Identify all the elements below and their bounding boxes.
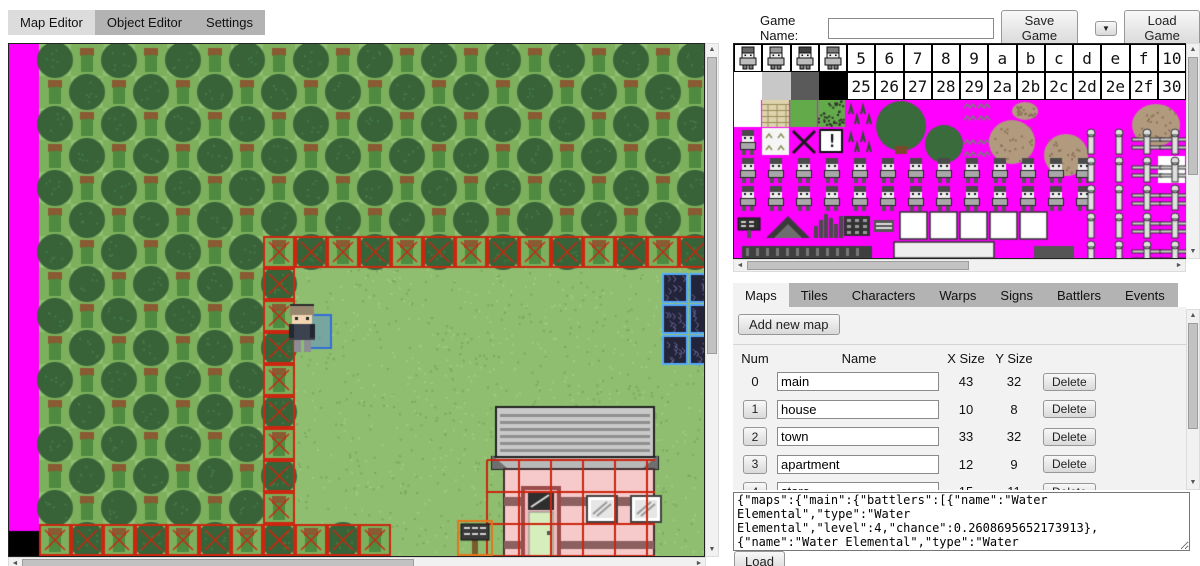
chevron-down-icon: ▼ xyxy=(1102,24,1110,33)
delete-map-button[interactable]: Delete xyxy=(1043,400,1096,418)
maps-table-header: Num Name X Size Y Size xyxy=(733,351,1037,366)
editor-tab-strip: Map EditorObject EditorSettings xyxy=(8,10,265,35)
map-num-label: 0 xyxy=(751,374,758,389)
swatch-cell-1[interactable] xyxy=(762,72,790,100)
map-num-button[interactable]: 4 xyxy=(743,482,767,490)
tile-cell-25[interactable]: 25 xyxy=(847,72,875,100)
person-sprite-icon xyxy=(737,46,759,70)
map-name-input[interactable] xyxy=(777,482,939,490)
tile-cell-29[interactable]: 29 xyxy=(960,72,988,100)
scroll-right-icon[interactable]: ► xyxy=(693,558,705,566)
tile-cell-28[interactable]: 28 xyxy=(932,72,960,100)
scroll-right-icon[interactable]: ► xyxy=(1173,260,1185,271)
tile-cell-d[interactable]: d xyxy=(1073,44,1101,72)
map-row: 23332Delete xyxy=(733,423,1186,451)
maps-vscroll-thumb[interactable] xyxy=(1188,323,1198,429)
map-name-input[interactable] xyxy=(777,427,939,446)
map-hscroll-thumb[interactable] xyxy=(22,559,414,566)
load-button[interactable]: Load xyxy=(734,551,785,566)
game-name-input[interactable] xyxy=(828,18,994,39)
tile-cell-10[interactable]: 10 xyxy=(1158,44,1186,72)
tile-cell-30[interactable]: 30 xyxy=(1158,72,1186,100)
map-row: 1108Delete xyxy=(733,396,1186,424)
panel-tab-events[interactable]: Events xyxy=(1113,283,1177,308)
tile-cell-6[interactable]: 6 xyxy=(875,44,903,72)
tile-cell-2d[interactable]: 2d xyxy=(1073,72,1101,100)
tileset-hscroll-thumb[interactable] xyxy=(747,261,969,270)
map-ysize: 11 xyxy=(991,484,1037,490)
scroll-left-icon[interactable]: ◄ xyxy=(9,558,21,566)
tileset-horizontal-scrollbar[interactable]: ◄ ► xyxy=(733,259,1186,272)
json-output-textarea[interactable]: {"maps":{"main":{"battlers":[{"name":"Wa… xyxy=(733,492,1190,551)
swatch-cell-3[interactable] xyxy=(819,72,847,100)
tile-cell-2e[interactable]: 2e xyxy=(1101,72,1129,100)
tile-palette-row-1: 56789abcdef10 xyxy=(734,44,1186,72)
map-vscroll-thumb[interactable] xyxy=(707,57,717,354)
panel-tab-strip: MapsTilesCharactersWarpsSignsBattlersEve… xyxy=(733,283,1178,308)
tile-cell-26[interactable]: 26 xyxy=(875,72,903,100)
person-sprite-icon xyxy=(794,46,816,70)
person-sprite-2[interactable] xyxy=(762,44,790,72)
tile-cell-2c[interactable]: 2c xyxy=(1045,72,1073,100)
map-row: 41511Delete xyxy=(733,478,1186,490)
map-xsize: 10 xyxy=(941,402,991,417)
panel-tab-characters[interactable]: Characters xyxy=(840,283,928,308)
delete-map-button[interactable]: Delete xyxy=(1043,373,1096,391)
tile-cell-b[interactable]: b xyxy=(1017,44,1045,72)
swatch-cell-0[interactable] xyxy=(734,72,762,100)
panel-tab-battlers[interactable]: Battlers xyxy=(1045,283,1113,308)
panel-tab-maps[interactable]: Maps xyxy=(733,283,789,308)
map-vertical-scrollbar[interactable]: ▲ ▼ xyxy=(705,43,719,557)
person-sprite-3[interactable] xyxy=(791,44,819,72)
tile-cell-5[interactable]: 5 xyxy=(847,44,875,72)
tileset-image[interactable] xyxy=(734,100,1186,258)
tile-cell-f[interactable]: f xyxy=(1130,44,1158,72)
map-ysize: 8 xyxy=(991,402,1037,417)
tile-cell-2f[interactable]: 2f xyxy=(1130,72,1158,100)
panel-tab-tiles[interactable]: Tiles xyxy=(789,283,840,308)
map-xsize: 33 xyxy=(941,429,991,444)
tile-cell-a[interactable]: a xyxy=(988,44,1016,72)
tileset-panel: 56789abcdef10 25262728292a2b2c2d2e2f30 xyxy=(733,43,1187,259)
tile-cell-c[interactable]: c xyxy=(1045,44,1073,72)
header-y-size: Y Size xyxy=(991,351,1037,366)
editor-tab-map-editor[interactable]: Map Editor xyxy=(8,10,95,35)
swatch-cell-2[interactable] xyxy=(791,72,819,100)
map-num-button[interactable]: 3 xyxy=(743,455,767,474)
map-xsize: 12 xyxy=(941,457,991,472)
delete-map-button[interactable]: Delete xyxy=(1043,428,1096,446)
editor-tab-object-editor[interactable]: Object Editor xyxy=(95,10,194,35)
tile-cell-e[interactable]: e xyxy=(1101,44,1129,72)
person-sprite-icon xyxy=(822,46,844,70)
map-ysize: 32 xyxy=(991,429,1037,444)
map-xsize: 43 xyxy=(941,374,991,389)
map-row: 3129Delete xyxy=(733,451,1186,479)
load-game-dropdown[interactable]: ▼ xyxy=(1095,21,1118,36)
game-name-label: Game Name: xyxy=(760,13,821,43)
panel-tab-warps[interactable]: Warps xyxy=(927,283,988,308)
header-num: Num xyxy=(733,351,777,366)
scroll-up-icon[interactable]: ▲ xyxy=(706,44,718,56)
scroll-down-icon[interactable]: ▼ xyxy=(706,544,718,556)
tile-cell-27[interactable]: 27 xyxy=(904,72,932,100)
divider xyxy=(733,344,1186,345)
map-editor-viewport xyxy=(8,43,705,557)
map-xsize: 15 xyxy=(941,484,991,490)
tile-cell-2b[interactable]: 2b xyxy=(1017,72,1045,100)
header-x-size: X Size xyxy=(941,351,991,366)
scroll-up-icon[interactable]: ▲ xyxy=(1187,310,1199,322)
maps-table-body: 04332Delete1108Delete23332Delete3129Dele… xyxy=(733,368,1186,490)
scroll-left-icon[interactable]: ◄ xyxy=(734,260,746,271)
person-sprite-icon xyxy=(765,46,787,70)
tile-cell-9[interactable]: 9 xyxy=(960,44,988,72)
tile-cell-7[interactable]: 7 xyxy=(904,44,932,72)
map-num-button[interactable]: 1 xyxy=(743,400,767,419)
load-game-button[interactable]: Load Game xyxy=(1124,10,1200,46)
map-name-input[interactable] xyxy=(777,372,939,391)
game-controls: Game Name: Save Game ▼ Load Game xyxy=(760,10,1200,46)
person-sprite-1[interactable] xyxy=(734,44,762,72)
map-horizontal-scrollbar[interactable]: ◄ ► xyxy=(8,557,706,566)
delete-map-button[interactable]: Delete xyxy=(1043,455,1096,473)
tile-cell-8[interactable]: 8 xyxy=(932,44,960,72)
scroll-down-icon[interactable]: ▼ xyxy=(1187,246,1199,258)
add-new-map-button[interactable]: Add new map xyxy=(738,314,840,335)
map-ysize: 32 xyxy=(991,374,1037,389)
tile-cell-2a[interactable]: 2a xyxy=(988,72,1016,100)
scroll-down-icon[interactable]: ▼ xyxy=(1187,477,1199,489)
person-sprite-4[interactable] xyxy=(819,44,847,72)
scroll-up-icon[interactable]: ▲ xyxy=(1187,44,1199,56)
header-name: Name xyxy=(777,351,941,366)
tileset-vscroll-thumb[interactable] xyxy=(1188,57,1198,175)
delete-map-button[interactable]: Delete xyxy=(1043,483,1096,490)
maps-vertical-scrollbar[interactable]: ▲ ▼ xyxy=(1186,309,1200,490)
map-row: 04332Delete xyxy=(733,368,1186,396)
panel-tab-signs[interactable]: Signs xyxy=(988,283,1045,308)
map-num-button[interactable]: 2 xyxy=(743,427,767,446)
save-game-button[interactable]: Save Game xyxy=(1001,10,1077,46)
tileset-vertical-scrollbar[interactable]: ▲ ▼ xyxy=(1186,43,1200,259)
map-ysize: 9 xyxy=(991,457,1037,472)
tile-palette-row-2: 25262728292a2b2c2d2e2f30 xyxy=(734,72,1186,100)
map-name-input[interactable] xyxy=(777,400,939,419)
editor-tab-settings[interactable]: Settings xyxy=(194,10,265,35)
map-canvas[interactable] xyxy=(9,44,704,556)
maps-panel: Add new map Num Name X Size Y Size 04332… xyxy=(733,307,1186,490)
map-name-input[interactable] xyxy=(777,455,939,474)
